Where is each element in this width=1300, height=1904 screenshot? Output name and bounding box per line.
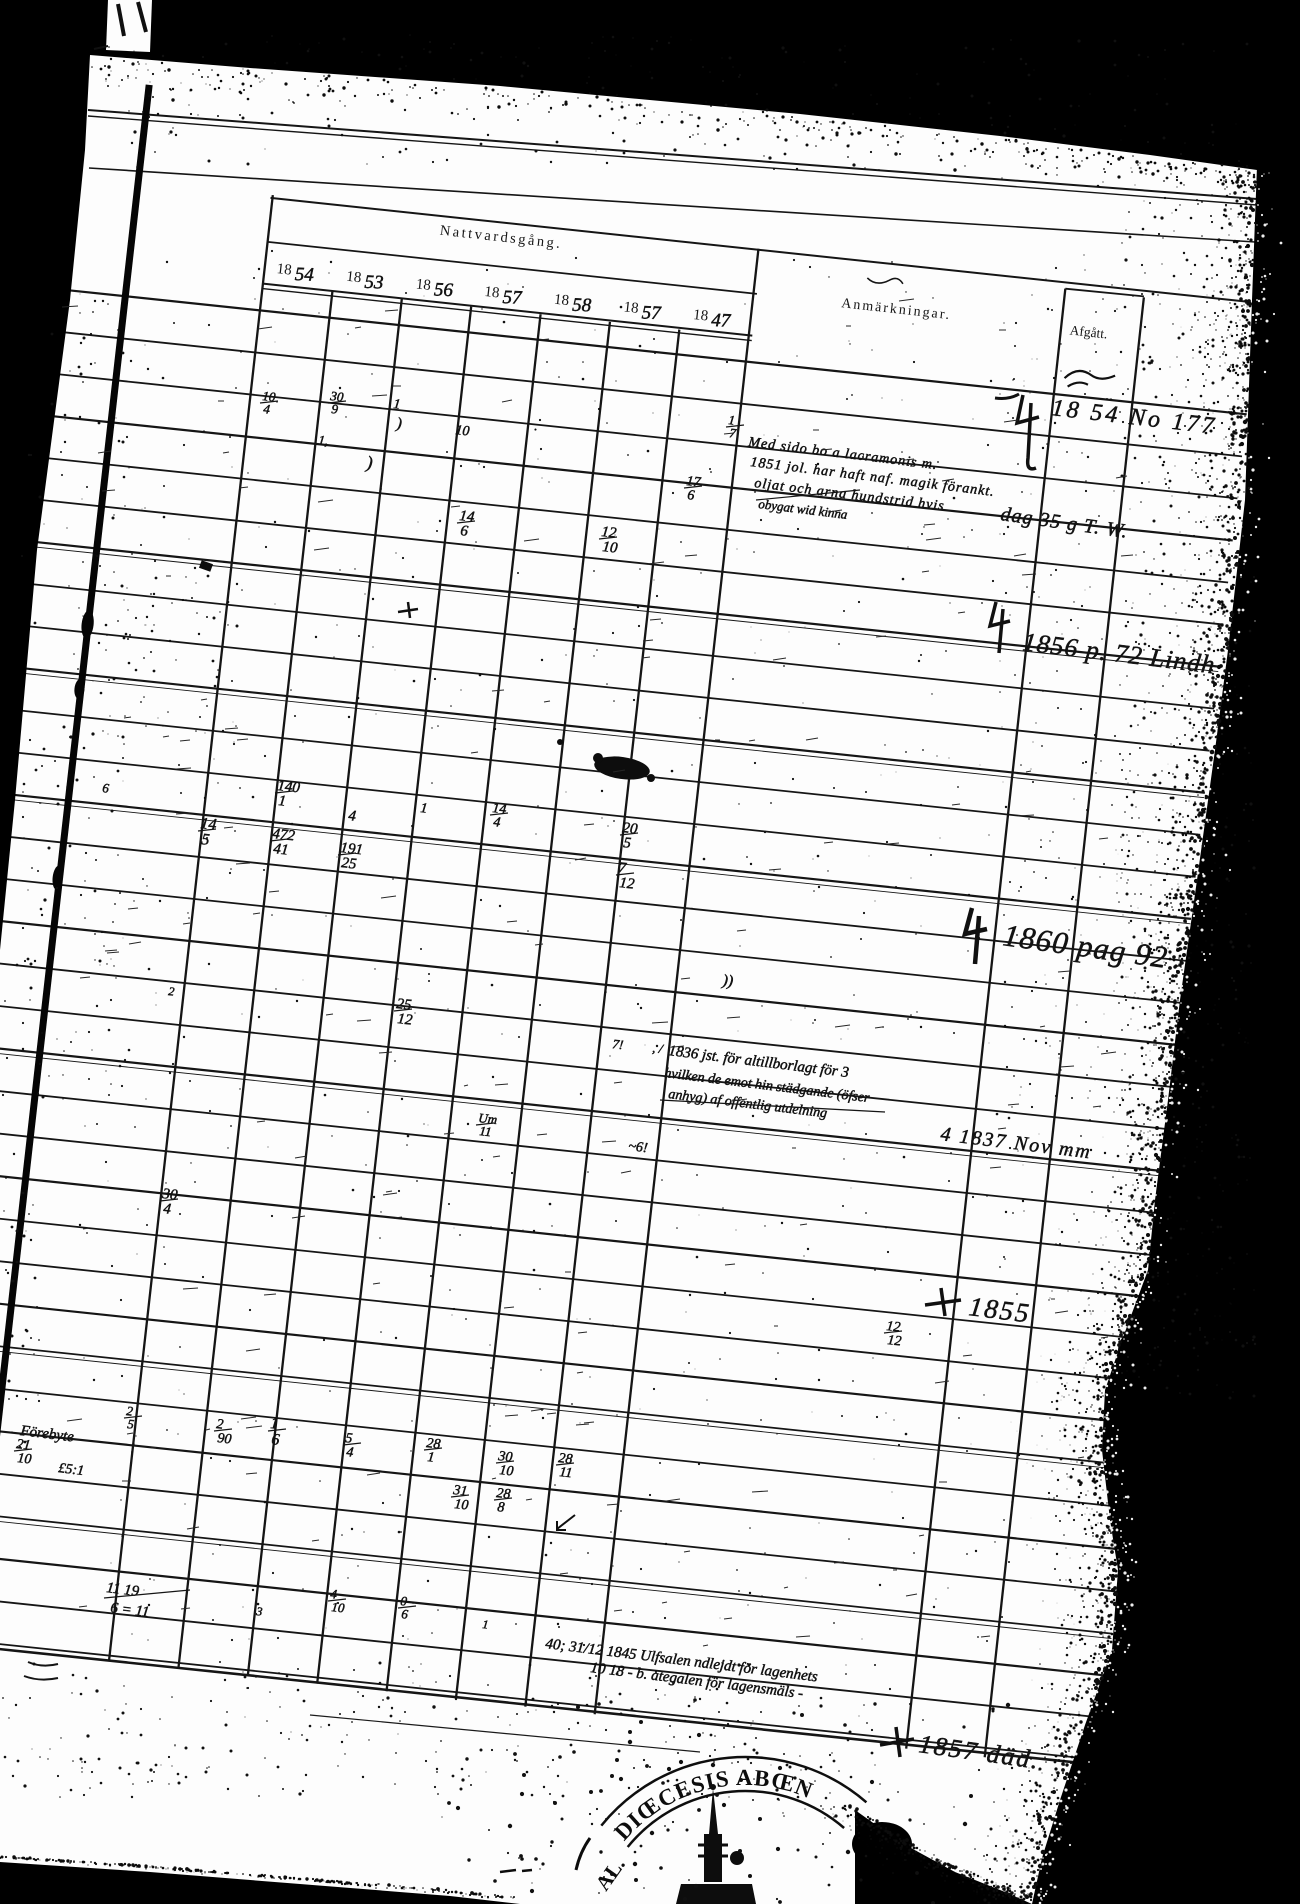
svg-text:10: 10	[455, 423, 471, 439]
svg-text:53: 53	[364, 272, 384, 294]
svg-text:12: 12	[397, 1011, 414, 1029]
svg-text:47: 47	[711, 310, 732, 332]
svg-text:18: 18	[415, 276, 432, 294]
svg-text:11: 11	[559, 1465, 574, 1481]
svg-text:)): ))	[721, 972, 735, 990]
svg-text:10: 10	[454, 1497, 470, 1513]
svg-text:25: 25	[341, 855, 358, 873]
svg-text:12: 12	[619, 875, 636, 893]
svg-text:41: 41	[273, 841, 290, 859]
svg-text:57: 57	[641, 302, 662, 324]
svg-text:10: 10	[499, 1463, 515, 1479]
svg-text:18: 18	[692, 307, 709, 325]
svg-text:18: 18	[345, 269, 362, 287]
svg-text:7!: 7!	[612, 1036, 625, 1052]
svg-text:£5:1: £5:1	[58, 1461, 85, 1479]
svg-text:18: 18	[553, 292, 570, 310]
svg-text:56: 56	[434, 279, 454, 301]
svg-text:1,: 1,	[318, 432, 329, 448]
svg-text:10: 10	[602, 539, 619, 557]
svg-text:90: 90	[217, 1431, 233, 1447]
svg-text:54: 54	[294, 264, 314, 286]
svg-text:57: 57	[502, 287, 523, 309]
svg-text:~6!: ~6!	[628, 1139, 649, 1156]
svg-text:10: 10	[331, 1599, 346, 1615]
svg-text:58: 58	[572, 295, 592, 317]
svg-text:11: 11	[479, 1123, 493, 1139]
svg-text:18: 18	[276, 261, 293, 279]
svg-text:18: 18	[484, 284, 501, 302]
svg-text:18: 18	[623, 299, 640, 317]
svg-text:12: 12	[887, 1333, 903, 1349]
svg-text:10: 10	[17, 1451, 33, 1467]
